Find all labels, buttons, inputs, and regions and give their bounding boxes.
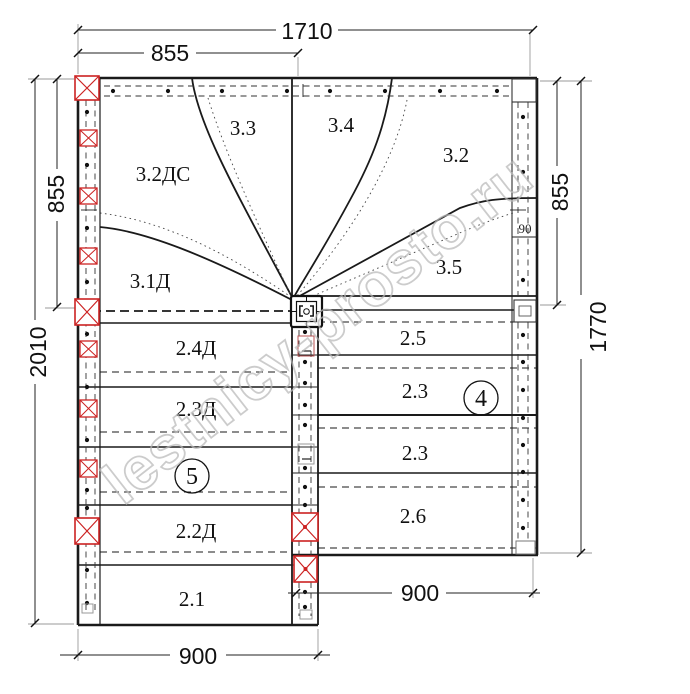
label-step-3-2: 3.2: [443, 143, 469, 167]
post-right-mid: [514, 300, 536, 322]
dim-right-total: 1770: [585, 301, 611, 352]
label-step-2-2d: 2.2Д: [176, 519, 217, 543]
dim-left-total: 2010: [25, 326, 51, 377]
label-step-3-2ds: 3.2ДС: [136, 162, 191, 186]
dim-top-half: 855: [151, 40, 189, 66]
post-top-right: [512, 79, 536, 102]
post-big-left-mid: [75, 299, 99, 325]
dim-left-upper: 855: [43, 175, 69, 213]
dim-right-upper: 855: [547, 173, 573, 211]
label-step-2-4d: 2.4Д: [176, 336, 217, 360]
dim-top-total: 1710: [281, 18, 332, 44]
label-step-3-3: 3.3: [230, 116, 256, 140]
dim-bottom-left: 900: [179, 643, 217, 669]
label-step-2-3b: 2.3: [402, 441, 428, 465]
label-step-2-5: 2.5: [400, 326, 426, 350]
post-big-top-left: [75, 76, 99, 100]
label-step-2-6: 2.6: [400, 504, 426, 528]
label-step-3-4: 3.4: [328, 113, 355, 137]
post-big-left-low: [75, 518, 99, 544]
dim-bottom-right: 900: [401, 580, 439, 606]
marker-4: 4: [475, 386, 487, 412]
post-big-center-low: [292, 513, 318, 541]
label-step-2-3a: 2.3: [402, 379, 428, 403]
label-step-3-1d: 3.1Д: [130, 269, 171, 293]
label-step-2-1: 2.1: [179, 587, 205, 611]
post-center-bottom: [294, 556, 317, 582]
staircase-plan-drawing: 1710 855 855 2010 855 1770 900 900 90 3.…: [0, 0, 690, 694]
dim-gap-90: 90: [519, 221, 532, 236]
